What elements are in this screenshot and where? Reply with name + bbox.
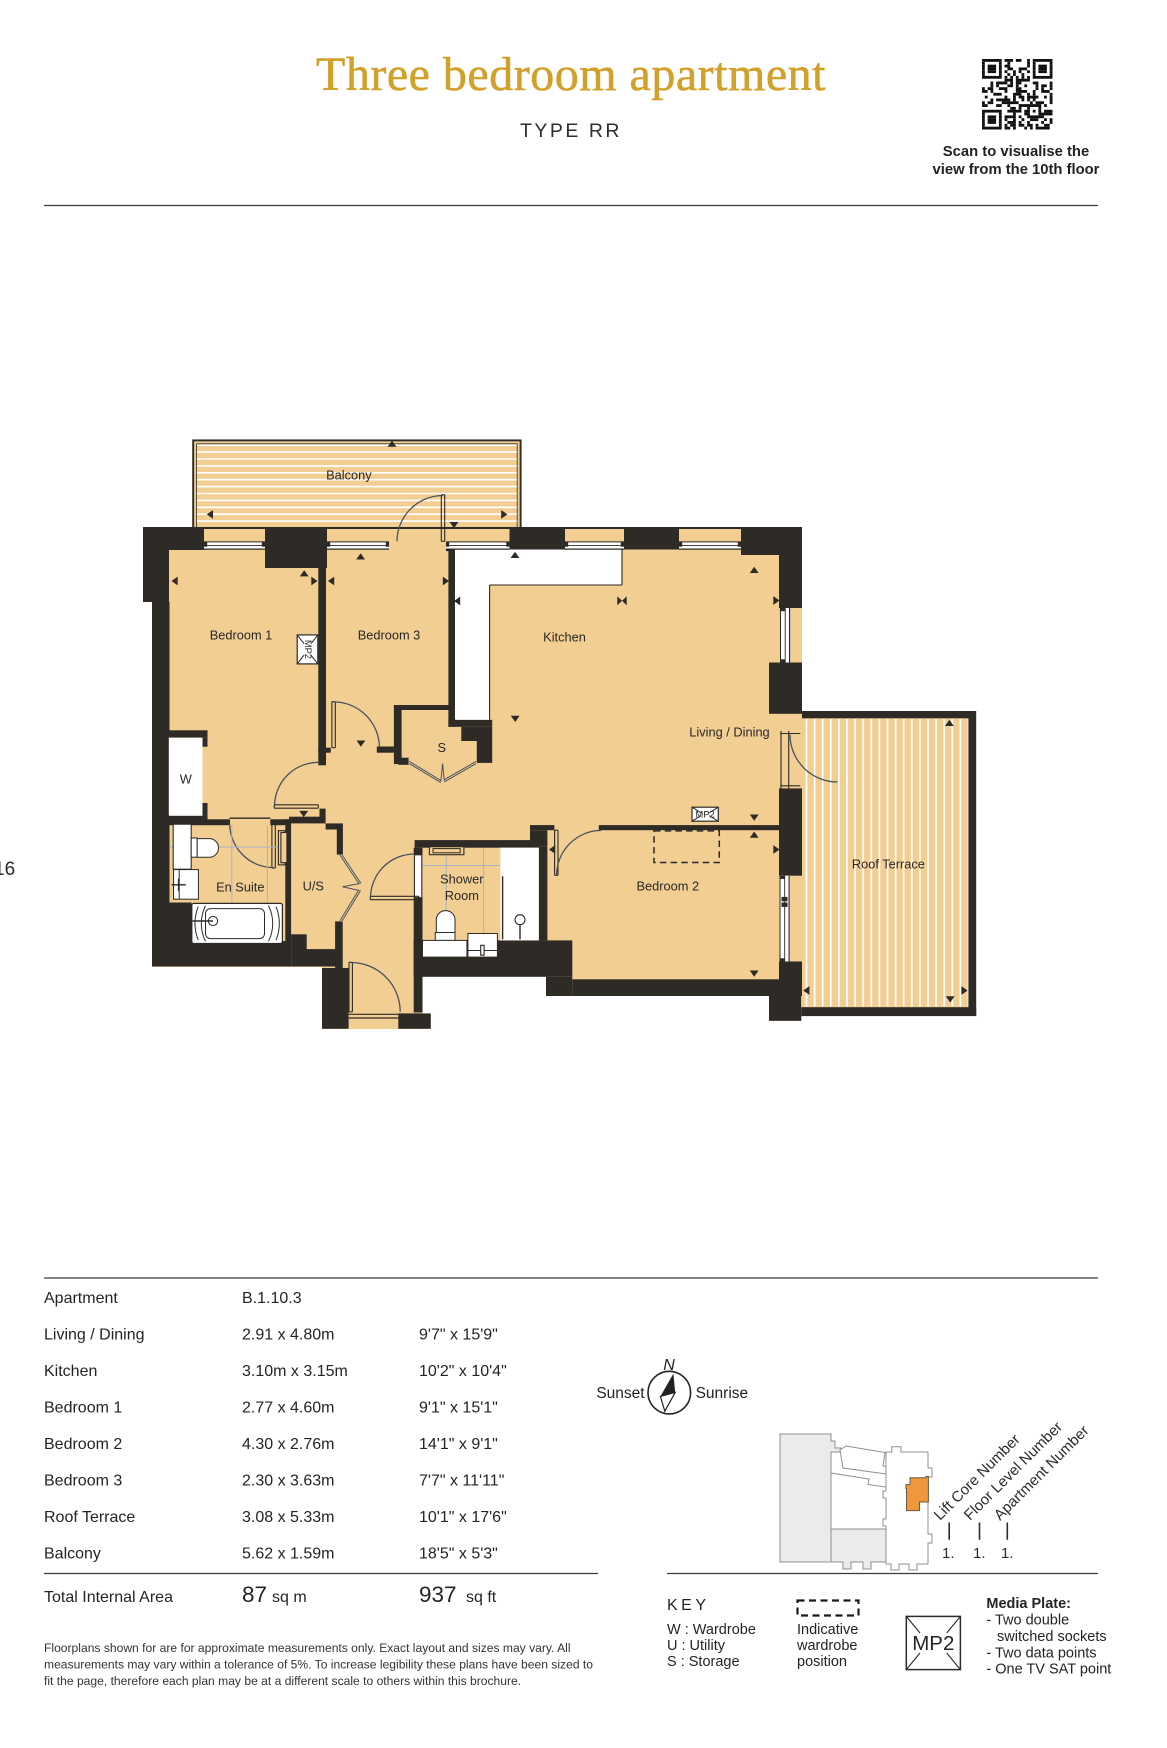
svg-text:Room: Room (445, 888, 479, 903)
svg-text:Bedroom 1: Bedroom 1 (44, 1400, 122, 1417)
svg-text:switched sockets: switched sockets (997, 1629, 1107, 1645)
svg-text:U/S: U/S (303, 879, 324, 894)
svg-text:MP2: MP2 (696, 810, 715, 820)
svg-text:U : Utility: U : Utility (667, 1638, 726, 1654)
svg-text:Balcony: Balcony (44, 1546, 101, 1563)
svg-text:Bedroom 2: Bedroom 2 (44, 1436, 122, 1453)
svg-text:fit the page, therefore each p: fit the page, therefore each plan may be… (44, 1674, 521, 1688)
svg-text:- Two double: - Two double (986, 1613, 1069, 1629)
svg-text:Living / Dining: Living / Dining (689, 725, 769, 740)
svg-text:sq m: sq m (272, 1589, 307, 1606)
svg-text:5.62 x 1.59m: 5.62 x 1.59m (242, 1546, 335, 1563)
svg-text:Shower: Shower (440, 871, 484, 886)
svg-text:16: 16 (0, 859, 15, 880)
svg-text:Balcony: Balcony (326, 467, 372, 482)
svg-text:wardrobe: wardrobe (796, 1638, 857, 1654)
svg-text:4.30 x 2.76m: 4.30 x 2.76m (242, 1436, 335, 1453)
svg-text:3.10m x 3.15m: 3.10m x 3.15m (242, 1363, 348, 1380)
svg-text:measurements may vary within a: measurements may vary within a tolerance… (44, 1658, 593, 1672)
svg-text:N: N (663, 1357, 675, 1374)
svg-text:9'7" x 15'9": 9'7" x 15'9" (419, 1327, 498, 1344)
svg-text:sq ft: sq ft (466, 1589, 497, 1606)
svg-text:Bedroom 3: Bedroom 3 (358, 628, 421, 643)
svg-text:1.: 1. (1001, 1545, 1014, 1562)
svg-text:937: 937 (419, 1582, 457, 1607)
svg-text:1.: 1. (942, 1545, 955, 1562)
svg-text:Three bedroom apartment: Three bedroom apartment (316, 48, 826, 101)
svg-text:Kitchen: Kitchen (44, 1363, 97, 1380)
svg-text:- One TV SAT point: - One TV SAT point (986, 1662, 1111, 1678)
svg-text:Bedroom 3: Bedroom 3 (44, 1473, 122, 1490)
svg-text:87: 87 (242, 1582, 267, 1607)
svg-text:position: position (797, 1654, 847, 1670)
svg-text:Scan to visualise the: Scan to visualise the (943, 144, 1089, 160)
svg-text:7'7" x 11'11": 7'7" x 11'11" (419, 1473, 504, 1490)
svg-text:KEY: KEY (667, 1597, 710, 1614)
svg-text:Total Internal Area: Total Internal Area (44, 1589, 173, 1606)
svg-text:Living / Dining: Living / Dining (44, 1327, 145, 1344)
svg-text:TYPE RR: TYPE RR (520, 120, 622, 142)
svg-text:- Two data points: - Two data points (986, 1646, 1096, 1662)
svg-text:Bedroom 2: Bedroom 2 (636, 879, 699, 894)
svg-text:view from the 10th floor: view from the 10th floor (933, 162, 1100, 178)
svg-text:MP2: MP2 (912, 1632, 954, 1655)
svg-text:B.1.10.3: B.1.10.3 (242, 1290, 302, 1307)
svg-text:S: S (438, 740, 447, 755)
svg-text:Bedroom 1: Bedroom 1 (210, 628, 273, 643)
svg-text:Floorplans shown for are for a: Floorplans shown for are for approximate… (44, 1641, 571, 1655)
svg-text:Kitchen: Kitchen (543, 630, 586, 645)
svg-text:9'1" x 15'1": 9'1" x 15'1" (419, 1400, 498, 1417)
svg-text:W: W (180, 771, 193, 786)
svg-text:W : Wardrobe: W : Wardrobe (667, 1622, 756, 1638)
svg-text:2.77 x 4.60m: 2.77 x 4.60m (242, 1400, 335, 1417)
svg-text:Roof Terrace: Roof Terrace (44, 1509, 135, 1526)
svg-text:Media Plate:: Media Plate: (986, 1596, 1071, 1612)
svg-text:Sunset: Sunset (596, 1385, 645, 1402)
svg-text:3.08 x 5.33m: 3.08 x 5.33m (242, 1509, 335, 1526)
svg-text:2.30 x 3.63m: 2.30 x 3.63m (242, 1473, 335, 1490)
svg-text:2.91 x 4.80m: 2.91 x 4.80m (242, 1327, 335, 1344)
svg-text:S : Storage: S : Storage (667, 1654, 740, 1670)
svg-text:1.: 1. (973, 1545, 986, 1562)
svg-text:Roof Terrace: Roof Terrace (852, 856, 925, 871)
svg-text:En Suite: En Suite (216, 879, 264, 894)
svg-text:10'1" x 17'6": 10'1" x 17'6" (419, 1509, 507, 1526)
svg-text:Sunrise: Sunrise (696, 1385, 749, 1402)
svg-text:14'1" x 9'1": 14'1" x 9'1" (419, 1436, 498, 1453)
svg-text:10'2" x 10'4": 10'2" x 10'4" (419, 1363, 507, 1380)
svg-text:18'5" x 5'3": 18'5" x 5'3" (419, 1546, 498, 1563)
svg-text:Apartment: Apartment (44, 1290, 118, 1307)
svg-text:MP2: MP2 (303, 640, 313, 659)
svg-text:Indicative: Indicative (797, 1622, 858, 1638)
